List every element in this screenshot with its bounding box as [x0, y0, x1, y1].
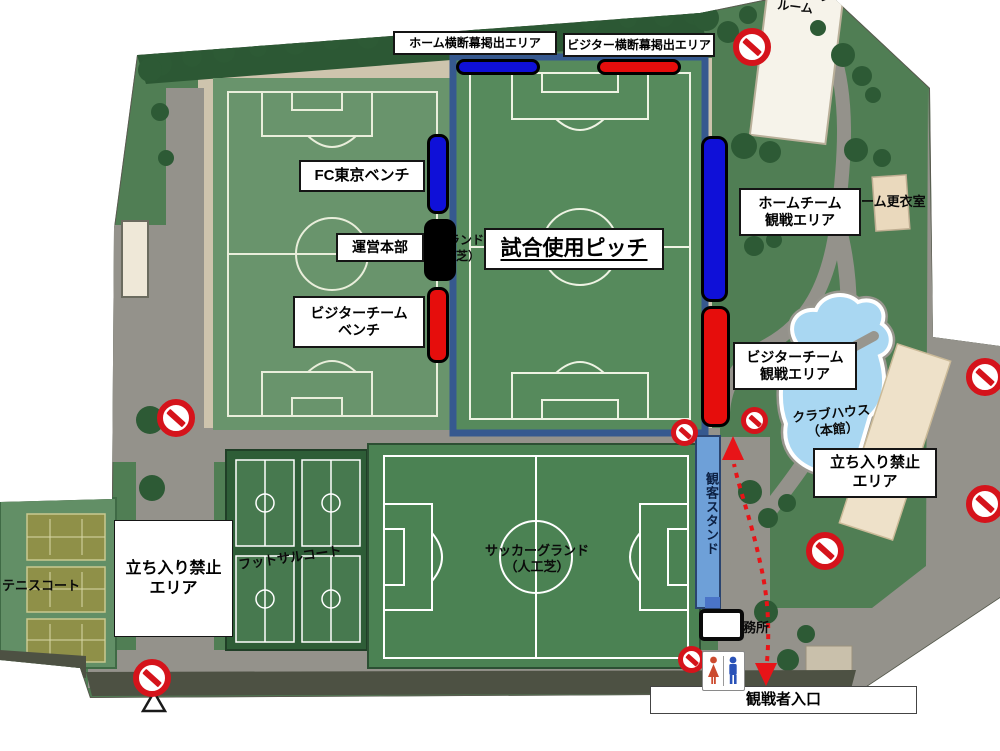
- facility-map: ミーティング ルーム ホーム更衣室 クラブハウス （本館） テニスコート フット…: [0, 0, 1000, 751]
- south-building: [806, 646, 852, 672]
- spectator-stand-label: 観客スタンド: [697, 472, 719, 602]
- female-icon: [708, 657, 719, 684]
- no-entry-icon: [157, 399, 195, 437]
- visitor-stand-marker: [701, 306, 730, 427]
- no-entry-icon: [966, 485, 1000, 523]
- visitor-banner-area-label: ビジター横断幕掲出エリア: [563, 33, 715, 57]
- west-building: [122, 221, 148, 297]
- spectator-entrance-label: 観戦者入口: [650, 686, 917, 714]
- obscured-label-fragment: 芝）: [456, 249, 480, 263]
- home-banner-area-label: ホーム横断幕掲出エリア: [393, 31, 557, 55]
- no-entry-icon: [741, 407, 768, 434]
- home-stand-label: ホームチーム 観戦エリア: [739, 188, 861, 236]
- home-banner-marker: [456, 59, 540, 75]
- no-entry-icon: [678, 646, 705, 673]
- no-entry-icon: [806, 532, 844, 570]
- match-pitch-label: 試合使用ピッチ: [484, 228, 664, 270]
- no-entry-icon: [671, 419, 698, 446]
- restroom-icon: [702, 651, 745, 691]
- no-entry-area-label-west: 立ち入り禁止 エリア: [114, 520, 233, 637]
- visitor-stand-label: ビジターチーム 観戦エリア: [733, 342, 857, 390]
- no-entry-icon: [966, 358, 1000, 396]
- visitor-bench-marker: [427, 287, 449, 363]
- fc-tokyo-bench-marker: [427, 134, 449, 214]
- soccer-ground-label: サッカーグランド （人工芝）: [478, 543, 596, 574]
- visitor-bench-label: ビジターチーム ベンチ: [293, 296, 425, 348]
- male-icon: [729, 657, 736, 684]
- tennis-court-label: テニスコート: [2, 578, 80, 594]
- home-stand-marker: [701, 136, 728, 302]
- operations-hq-marker: [424, 219, 456, 281]
- no-entry-area-label-east: 立ち入り禁止 エリア: [813, 448, 937, 498]
- visitor-banner-marker: [597, 59, 681, 75]
- fc-tokyo-bench-label: FC東京ベンチ: [299, 160, 425, 192]
- office-box: [699, 609, 744, 641]
- operations-hq-label: 運営本部: [336, 233, 424, 262]
- no-entry-icon: [733, 28, 771, 66]
- no-entry-icon: [133, 659, 171, 697]
